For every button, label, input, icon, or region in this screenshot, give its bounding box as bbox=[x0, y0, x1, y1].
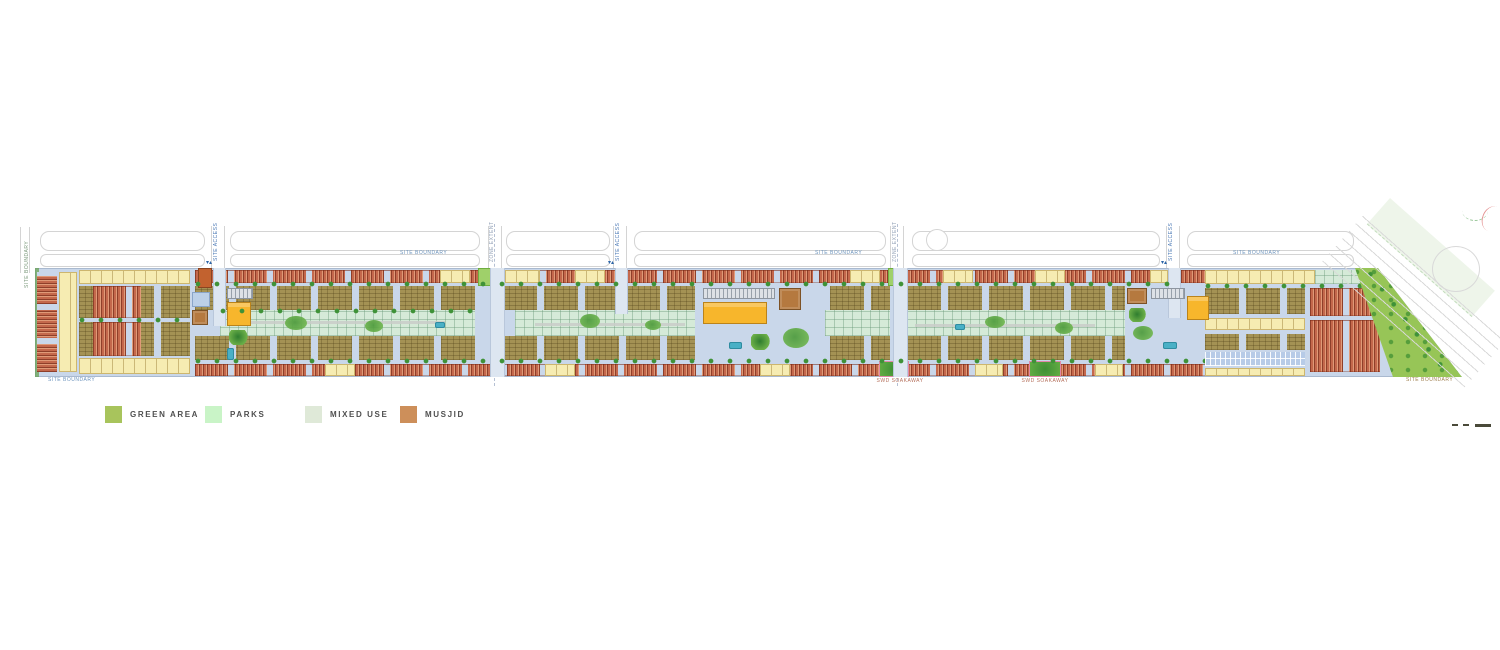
service-road-segment bbox=[634, 231, 886, 251]
swimming-pool bbox=[729, 342, 742, 349]
plot-strip bbox=[325, 364, 355, 376]
park-blob bbox=[985, 316, 1005, 328]
street-trees bbox=[195, 281, 1175, 287]
site-plan-strip bbox=[35, 268, 1462, 377]
rowhouse-strip bbox=[37, 272, 57, 372]
rowhouse-cluster bbox=[93, 322, 141, 356]
legend-item: GREEN AREA bbox=[105, 406, 199, 423]
service-road-segment bbox=[912, 231, 1160, 251]
parking-lot bbox=[703, 288, 775, 299]
site-access-arrows-icon: ▾▴ bbox=[608, 259, 614, 266]
master-plan-canvas: SITE BOUNDARY SITE BOUNDARY SITE BOUNDAR… bbox=[0, 0, 1500, 650]
access-road bbox=[213, 268, 226, 326]
apartment-block-band bbox=[1205, 288, 1305, 314]
apartment-block-band bbox=[907, 286, 1125, 310]
legend-swatch bbox=[400, 406, 417, 423]
legend-label: MIXED USE bbox=[330, 410, 388, 419]
plot-strip bbox=[545, 364, 575, 376]
scale-bar-mark bbox=[1475, 424, 1491, 427]
street-trees bbox=[195, 358, 1205, 364]
swd-soakaway-label: SWD SOAKAWAY bbox=[865, 378, 935, 384]
park-path bbox=[535, 323, 685, 326]
swimming-pool bbox=[1163, 342, 1177, 349]
site-boundary-label: SITE BOUNDARY bbox=[1406, 377, 1453, 383]
apartment-block-band bbox=[830, 286, 890, 310]
swd-soakaway-label: SWD SOAKAWAY bbox=[1010, 378, 1080, 384]
plot-strip bbox=[975, 364, 1003, 376]
park-path bbox=[245, 321, 445, 324]
plot-strip bbox=[760, 364, 790, 376]
site-access-label: SITE ACCESS bbox=[213, 229, 219, 261]
service-road-segment bbox=[506, 254, 610, 267]
scale-bar-mark bbox=[1463, 424, 1469, 426]
plot-strip bbox=[1095, 364, 1123, 376]
musjid-building bbox=[192, 310, 208, 325]
park-blob bbox=[365, 320, 383, 332]
site-access-label: SITE ACCESS bbox=[615, 229, 621, 261]
school-building bbox=[703, 302, 767, 324]
street-trees bbox=[220, 308, 475, 314]
site-boundary-label: SITE BOUNDARY bbox=[48, 377, 95, 383]
service-road-segment bbox=[912, 254, 1160, 267]
plot-strip bbox=[79, 270, 190, 284]
legend-label: PARKS bbox=[230, 410, 265, 419]
apartment-block-band bbox=[503, 286, 615, 310]
zone-extent-label: ZONE EXTENT bbox=[489, 226, 495, 262]
legend-label: GREEN AREA bbox=[130, 410, 199, 419]
parking-lot bbox=[1151, 288, 1185, 299]
utility-line-green bbox=[1462, 200, 1488, 221]
legend-swatch bbox=[205, 406, 222, 423]
service-road-segment bbox=[230, 231, 480, 251]
green-mound bbox=[751, 334, 771, 350]
roundabout-icon bbox=[926, 229, 948, 251]
access-road bbox=[615, 268, 628, 314]
musjid-building bbox=[779, 288, 801, 310]
plot-strip bbox=[1205, 368, 1305, 376]
park-blob bbox=[580, 314, 600, 328]
service-road-segment bbox=[40, 231, 205, 251]
sports-court bbox=[955, 324, 965, 330]
swd-soakaway-park bbox=[1030, 362, 1060, 376]
service-road-segment bbox=[506, 231, 610, 251]
rowhouse-cluster bbox=[1310, 320, 1380, 372]
site-boundary-label: SITE BOUNDARY bbox=[24, 246, 30, 288]
parking-lot bbox=[227, 288, 253, 299]
musjid-building bbox=[1127, 288, 1147, 304]
park-blob bbox=[645, 320, 661, 330]
site-boundary-label: SITE BOUNDARY bbox=[815, 250, 862, 256]
park-blob bbox=[285, 316, 307, 330]
green-mound bbox=[1129, 308, 1147, 322]
apartment-block-band bbox=[503, 336, 695, 360]
park-blob bbox=[783, 328, 809, 348]
school-building bbox=[227, 302, 251, 326]
park-blob bbox=[1055, 322, 1073, 334]
mixed-use-spine bbox=[825, 310, 890, 336]
service-road-segment bbox=[40, 254, 205, 267]
site-boundary-label: SITE BOUNDARY bbox=[1233, 250, 1280, 256]
rowhouse-cluster bbox=[93, 286, 141, 318]
plot-strip bbox=[79, 358, 190, 374]
plot-strip bbox=[59, 272, 77, 372]
interchange-loop bbox=[1432, 246, 1480, 292]
rowhouse-strip bbox=[1181, 270, 1205, 283]
scale-bar-mark bbox=[1452, 424, 1458, 426]
apartment-block-band bbox=[626, 286, 695, 310]
apartment-block-band bbox=[1205, 334, 1305, 350]
legend-item: MUSJID bbox=[400, 406, 465, 423]
service-road-segment bbox=[1187, 231, 1354, 251]
rowhouse-blue-band bbox=[1205, 352, 1305, 366]
site-boundary-label: SITE BOUNDARY bbox=[400, 250, 447, 256]
legend-swatch bbox=[305, 406, 322, 423]
mixed-use-spine bbox=[907, 310, 1125, 336]
school-building bbox=[1187, 296, 1209, 320]
legend-item: PARKS bbox=[205, 406, 265, 423]
plot-strip bbox=[1205, 270, 1315, 284]
plot-strip bbox=[1205, 318, 1305, 330]
green-mound bbox=[229, 330, 249, 345]
street-trees bbox=[1205, 283, 1365, 289]
zone-extent-label: ZONE EXTENT bbox=[892, 226, 898, 262]
legend-item: MIXED USE bbox=[305, 406, 388, 423]
apartment-block-band bbox=[830, 336, 890, 360]
legend-swatch bbox=[105, 406, 122, 423]
legend-label: MUSJID bbox=[425, 410, 465, 419]
community-buildings bbox=[192, 292, 210, 307]
site-access-label: SITE ACCESS bbox=[1168, 229, 1174, 261]
site-access-arrows-icon: ▾▴ bbox=[1161, 259, 1167, 266]
sports-court bbox=[435, 322, 445, 328]
apartment-block-band bbox=[907, 336, 1125, 360]
street-trees bbox=[79, 317, 190, 323]
site-access-arrows-icon: ▾▴ bbox=[206, 259, 212, 266]
park-blob bbox=[1133, 326, 1153, 340]
